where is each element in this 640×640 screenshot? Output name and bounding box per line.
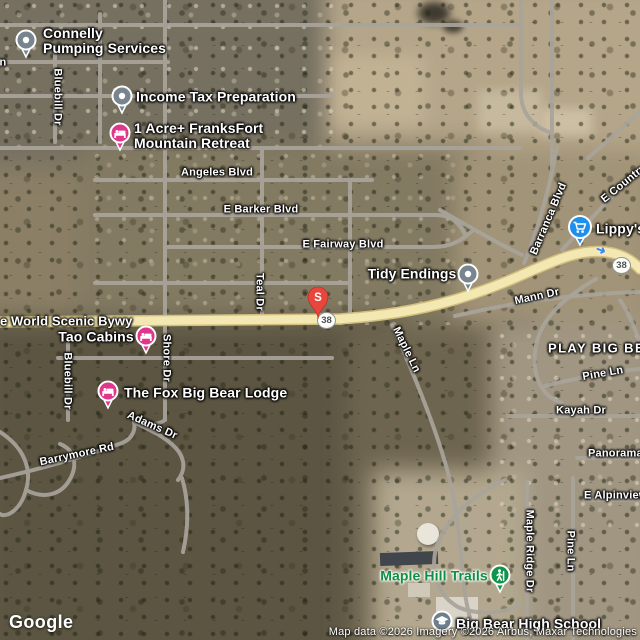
- income-tax-marker[interactable]: [110, 85, 134, 120]
- street-label-barker: E Barker Blvd: [224, 205, 299, 216]
- connelly-marker[interactable]: [14, 29, 38, 64]
- street-label-scenic-byway: e World Scenic Bywy: [0, 315, 132, 328]
- lippys-label[interactable]: Lippy's: [596, 222, 640, 237]
- street-label-angeles: Angeles Blvd: [181, 168, 253, 179]
- maple-hill-trails-marker[interactable]: [488, 564, 512, 599]
- street-label-pine-lower: Pine Ln: [565, 530, 576, 571]
- dot-icon: [465, 271, 471, 277]
- fox-lodge-label[interactable]: The Fox Big Bear Lodge: [124, 386, 287, 401]
- route-38-number-east: 38: [616, 260, 627, 271]
- franksfort-label-line2: Mountain Retreat: [134, 136, 263, 151]
- area-label-play-big-bear: PLAY BIG BEAR: [548, 342, 640, 355]
- income-tax-label[interactable]: Income Tax Preparation: [136, 90, 296, 105]
- fox-lodge-marker[interactable]: [96, 380, 120, 415]
- dot-icon: [23, 37, 29, 43]
- connelly-label-line2: Pumping Services: [43, 41, 166, 56]
- street-label-panorama: Panorama: [588, 449, 640, 460]
- connelly-label-line1: Connelly: [43, 26, 166, 41]
- street-label-shore: Shore Dr: [161, 334, 172, 382]
- pin-letter: S: [314, 292, 322, 304]
- connelly-label[interactable]: Connelly Pumping Services: [43, 26, 166, 56]
- tao-cabins-marker[interactable]: [134, 325, 158, 360]
- maple-hill-trails-label[interactable]: Maple Hill Trails: [380, 569, 488, 584]
- tidy-endings-marker[interactable]: [456, 263, 480, 298]
- route-38-badge-east: 38: [612, 257, 631, 274]
- street-label-bluebill-top: Bluebill Dr: [52, 68, 63, 125]
- pin-disc: [569, 216, 591, 238]
- map-attribution: Map data ©2026 Imagery ©2026 Airbus, Max…: [329, 626, 637, 638]
- franksfort-label-line1: 1 Acre+ FranksFort: [134, 121, 263, 136]
- franksfort-label[interactable]: 1 Acre+ FranksFort Mountain Retreat: [134, 121, 263, 151]
- street-label-maple-ridge: Maple Ridge Dr: [524, 510, 535, 593]
- tidy-endings-label[interactable]: Tidy Endings: [368, 267, 457, 282]
- tao-cabins-label[interactable]: Tao Cabins: [58, 330, 133, 345]
- street-label-kayah: Kayah Dr: [556, 406, 606, 417]
- google-logo[interactable]: Google: [9, 612, 73, 633]
- franksfort-marker[interactable]: [108, 122, 132, 157]
- street-label-fairway: E Fairway Blvd: [302, 240, 383, 251]
- street-label-teal: Teal Dr: [254, 273, 265, 311]
- lippys-marker[interactable]: [566, 215, 594, 252]
- destination-s-pin[interactable]: S: [305, 284, 331, 325]
- dot-icon: [119, 93, 125, 99]
- map-canvas[interactable]: n Bluebill Dr Angeles Blvd E Barker Blvd…: [0, 0, 640, 640]
- street-label-bluebill-lower: Bluebill Dr: [62, 352, 73, 409]
- street-label-alpinview: E Alpinview: [584, 491, 640, 502]
- street-label-partial: n: [0, 58, 6, 69]
